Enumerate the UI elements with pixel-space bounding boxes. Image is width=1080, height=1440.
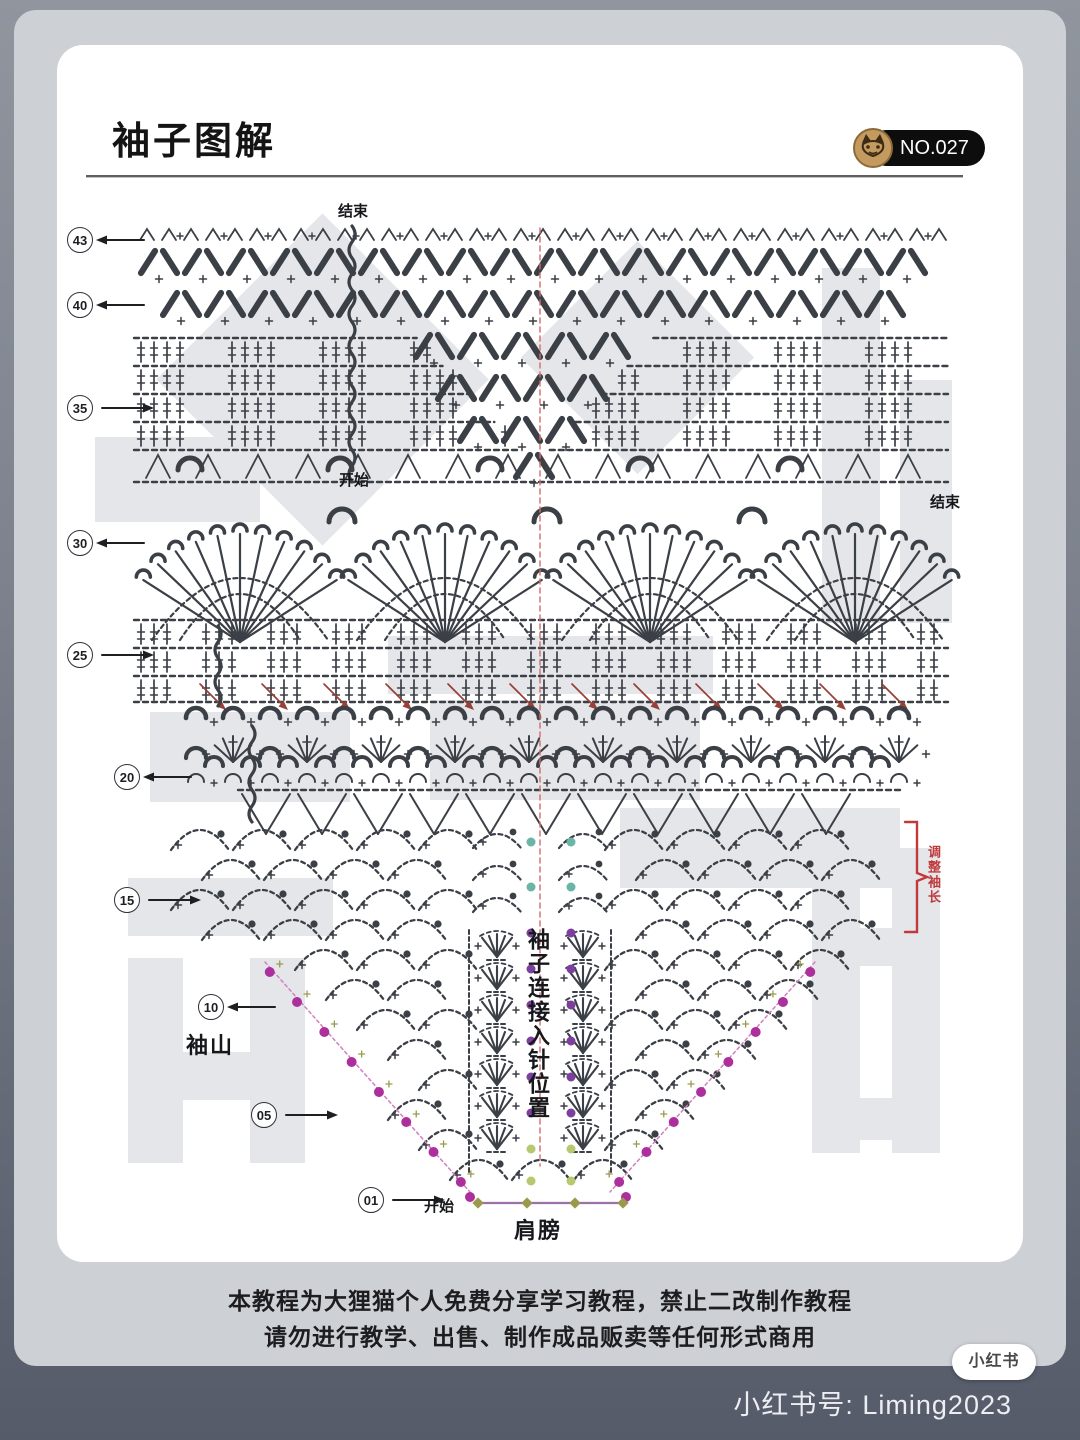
title-divider bbox=[86, 175, 963, 178]
row-marker-43: 43 bbox=[67, 227, 93, 253]
row-marker-20: 20 bbox=[114, 764, 140, 790]
disclaimer-line1: 本教程为大狸猫个人免费分享学习教程，禁止二改制作教程 bbox=[0, 1282, 1080, 1316]
label-center-vertical: 袖子连接入针位置 bbox=[521, 928, 553, 1168]
row-marker-15: 15 bbox=[114, 887, 140, 913]
row-marker-05: 05 bbox=[251, 1102, 277, 1128]
cat-icon bbox=[852, 127, 894, 169]
label-end-mid: 结束 bbox=[930, 491, 960, 512]
account-id-label: 小红书号: Liming2023 bbox=[733, 1383, 1012, 1422]
row-marker-30: 30 bbox=[67, 530, 93, 556]
label-shoulder: 肩膀 bbox=[514, 1213, 562, 1245]
label-adjust-length: 调整袖长 bbox=[924, 845, 943, 925]
screenshot-root: 袖子图解 NO.027 43403530252015100501 结束 开始 结… bbox=[0, 0, 1080, 1440]
row-marker-35: 35 bbox=[67, 395, 93, 421]
label-start-mid: 开始 bbox=[339, 469, 369, 490]
xiaohongshu-logo-pill: 小红书 bbox=[952, 1344, 1036, 1380]
row-marker-25: 25 bbox=[67, 642, 93, 668]
page-title: 袖子图解 bbox=[112, 110, 276, 165]
row-marker-40: 40 bbox=[67, 292, 93, 318]
label-end-top: 结束 bbox=[338, 200, 368, 221]
row-marker-01: 01 bbox=[358, 1187, 384, 1213]
disclaimer-line2: 请勿进行教学、出售、制作成品贩卖等任何形式商用 bbox=[0, 1318, 1080, 1352]
row-marker-10: 10 bbox=[198, 994, 224, 1020]
label-sleeve-cap: 袖山 bbox=[186, 1028, 234, 1060]
label-start-bottom: 开始 bbox=[424, 1195, 454, 1216]
